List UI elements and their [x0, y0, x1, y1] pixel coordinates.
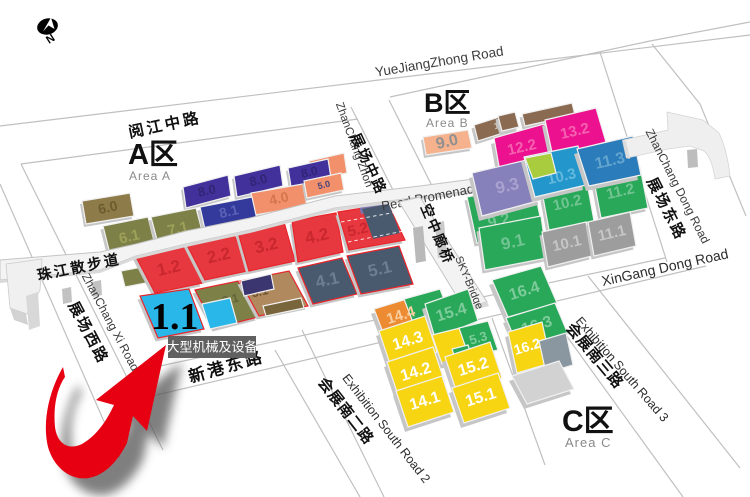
- svg-text:Area B: Area B: [426, 116, 469, 130]
- svg-text:Area A: Area A: [129, 169, 171, 183]
- svg-text:大型机械及设备: 大型机械及设备: [166, 340, 257, 355]
- svg-text:B区: B区: [424, 88, 471, 118]
- svg-text:A区: A区: [128, 139, 178, 171]
- svg-text:1.1: 1.1: [151, 296, 199, 338]
- svg-text:Area C: Area C: [565, 435, 611, 450]
- svg-text:C区: C区: [562, 405, 614, 438]
